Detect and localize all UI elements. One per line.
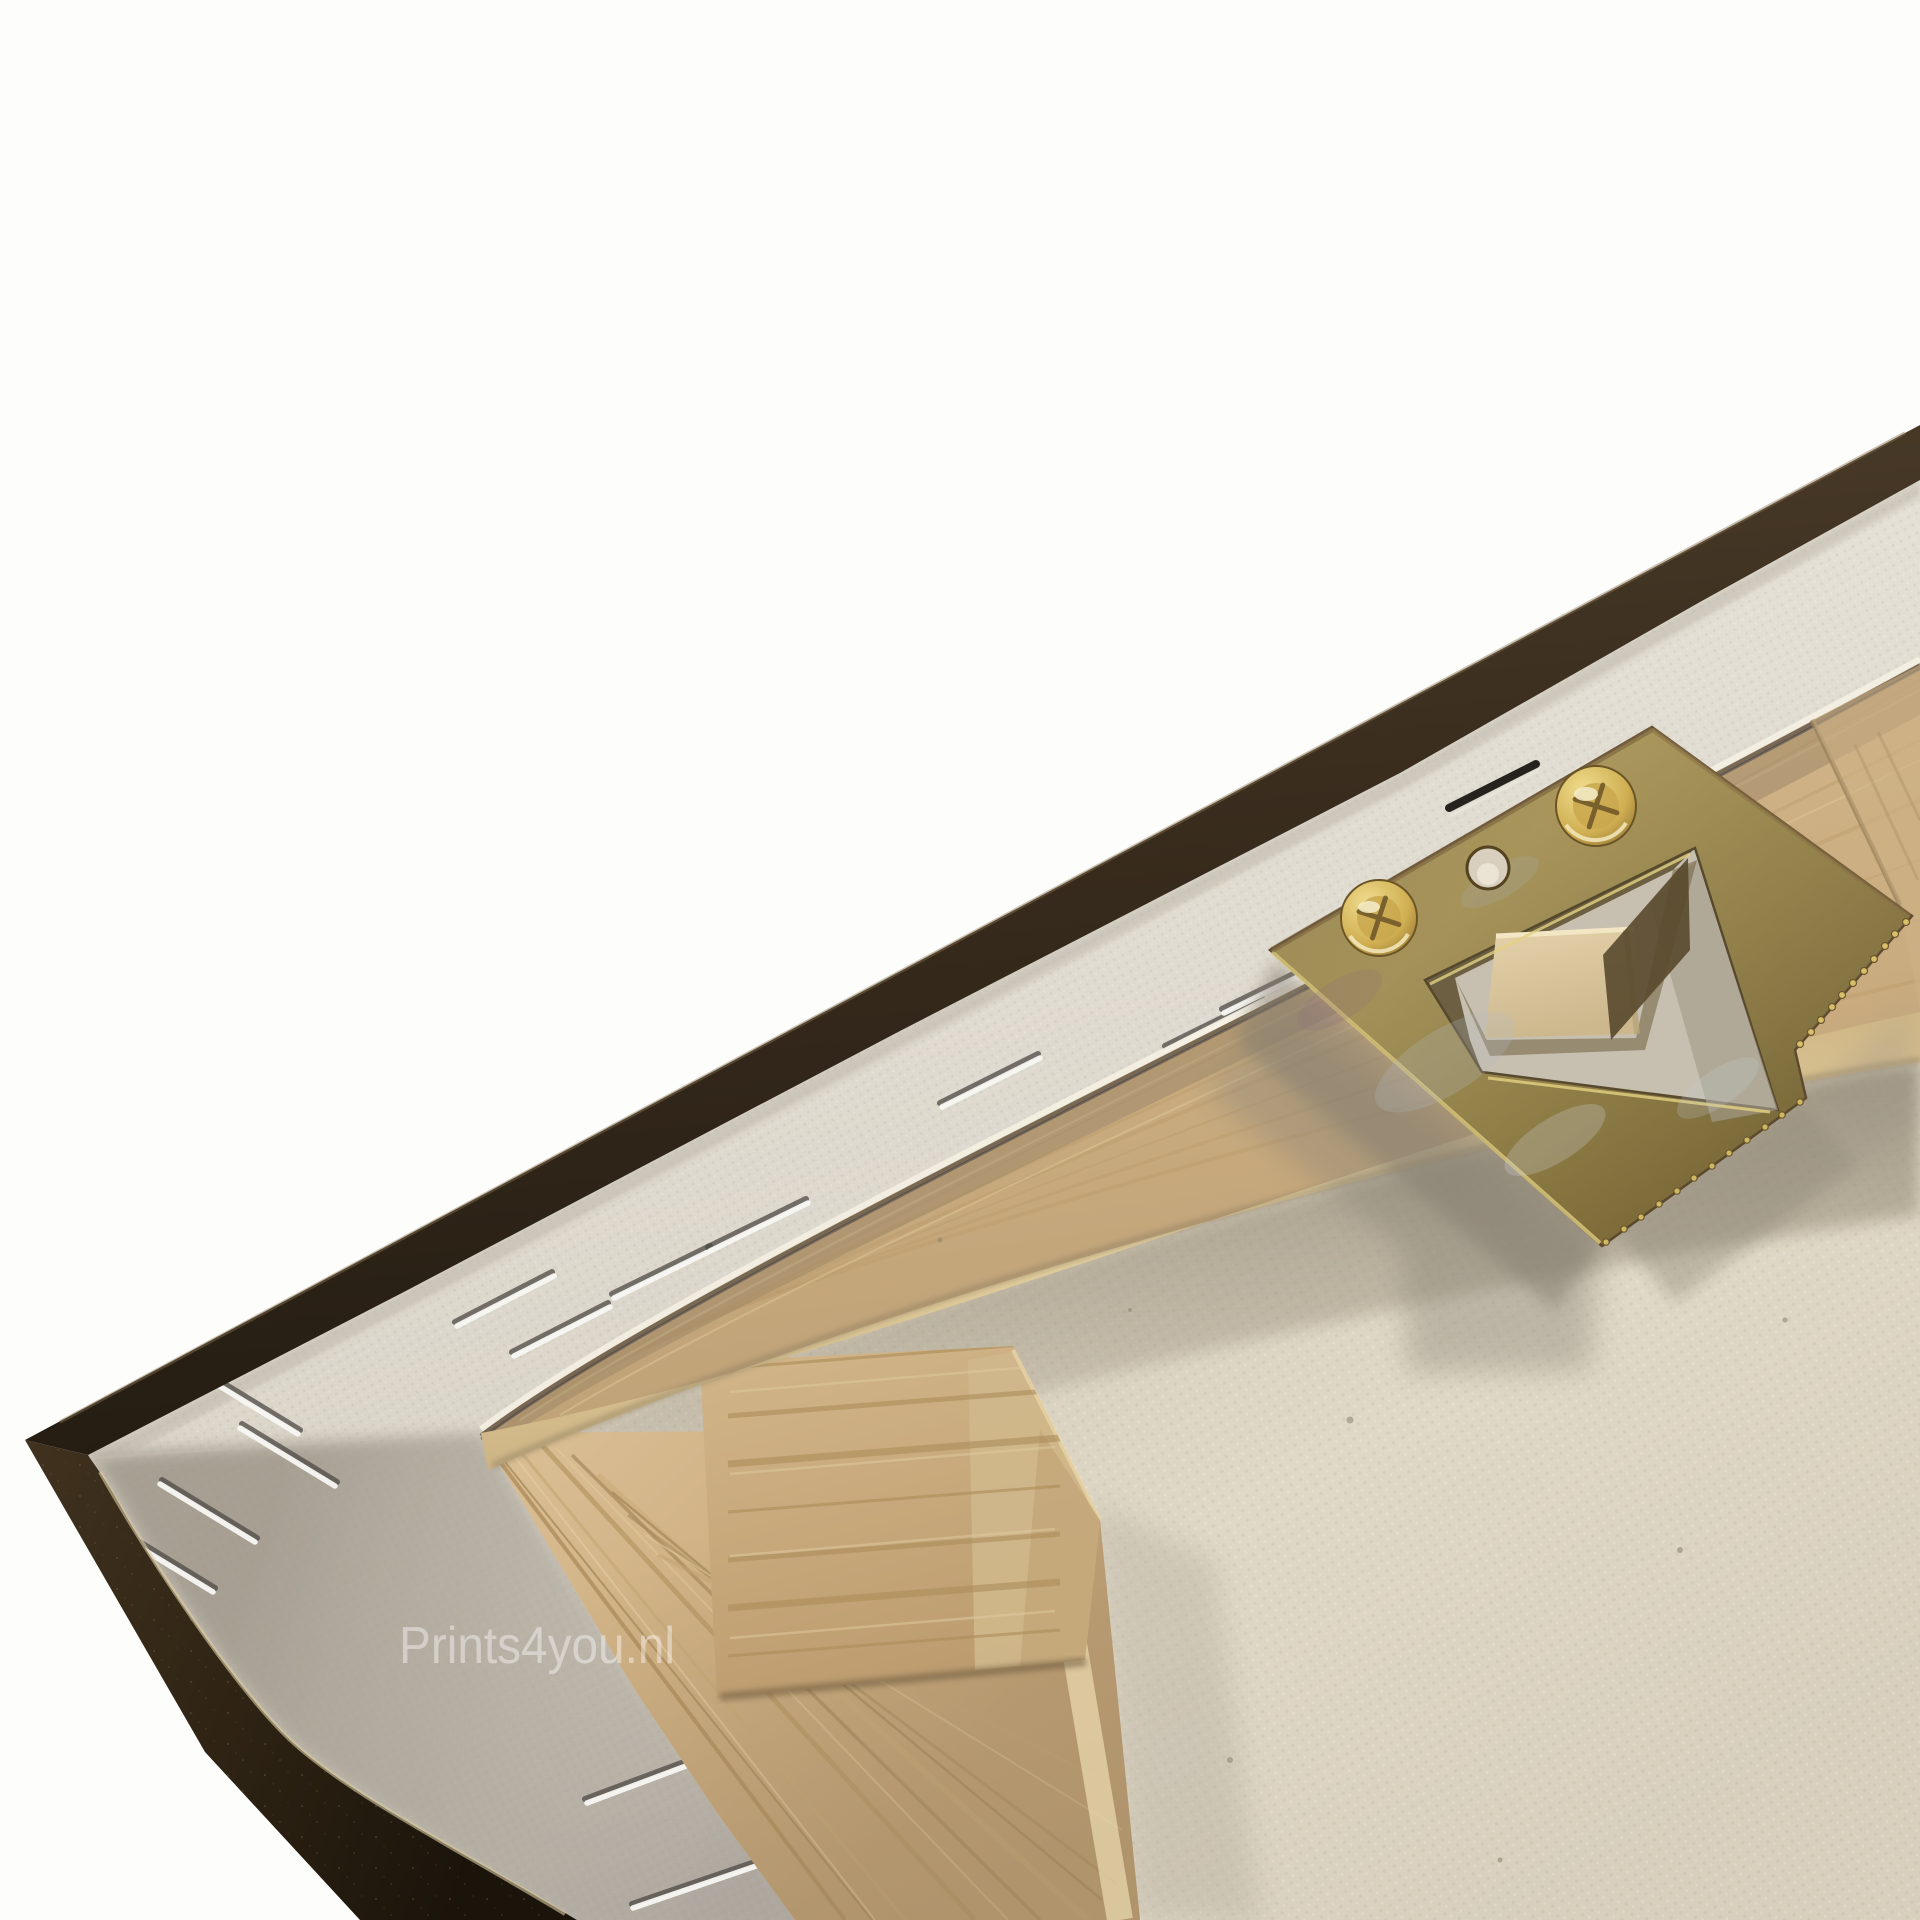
svg-text:Prints4you.nl: Prints4you.nl: [399, 1617, 675, 1675]
